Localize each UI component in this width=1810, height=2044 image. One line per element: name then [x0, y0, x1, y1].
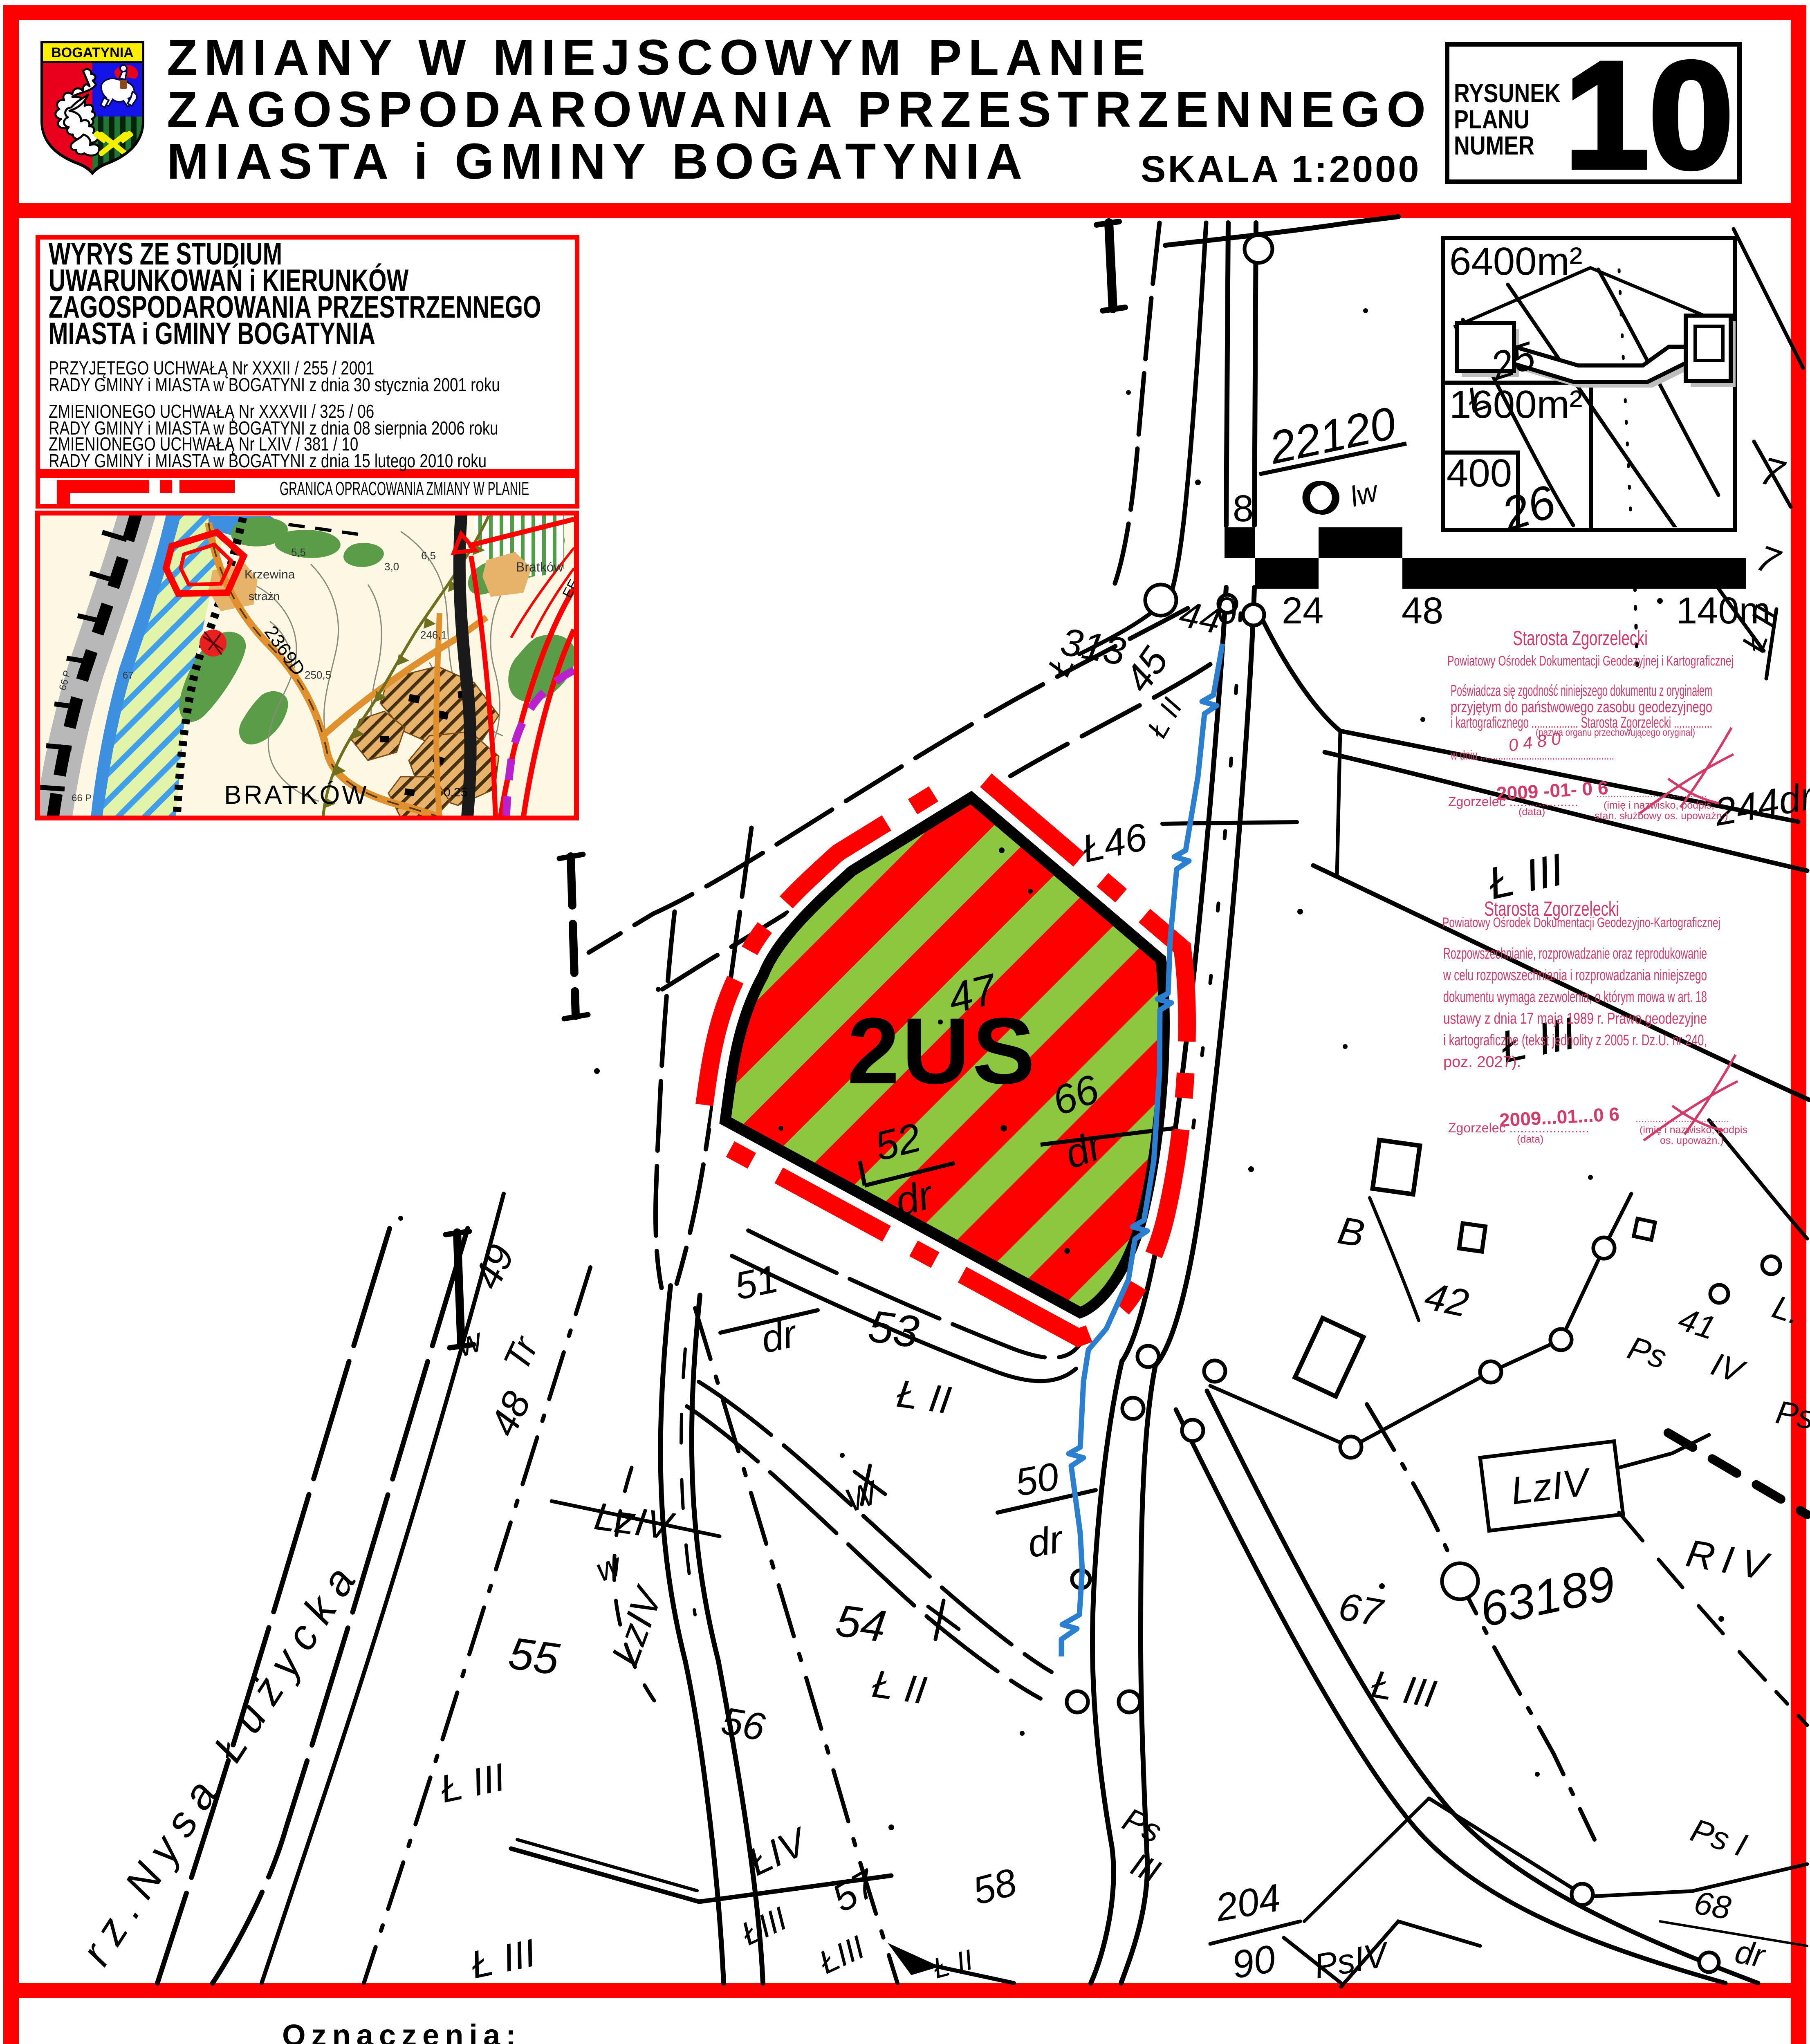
- svg-text:III: III: [1126, 1846, 1166, 1890]
- svg-text:BRATKÓW: BRATKÓW: [224, 780, 369, 809]
- svg-text:53: 53: [866, 1301, 922, 1358]
- svg-text:Ł46: Ł46: [1078, 815, 1151, 871]
- svg-text:6,5: 6,5: [421, 549, 436, 562]
- svg-text:Ł II: Ł II: [930, 1943, 976, 1985]
- svg-text:LzIV: LzIV: [592, 1495, 678, 1549]
- svg-text:24: 24: [1282, 590, 1323, 632]
- svg-text:(imię i nazwisko, podpis: (imię i nazwisko, podpis: [1640, 1124, 1747, 1136]
- svg-text:Ł III: Ł III: [467, 1931, 539, 1987]
- svg-text:Ł II: Ł II: [1141, 693, 1188, 743]
- svg-text:stan. służbowy os. upoważn.): stan. służbowy os. upoważn.): [1595, 810, 1728, 822]
- svg-text:BOGATYNIA: BOGATYNIA: [51, 45, 133, 61]
- svg-text:22120: 22120: [1265, 397, 1400, 473]
- svg-text:41: 41: [1674, 1301, 1720, 1347]
- svg-text:66 P: 66 P: [72, 793, 92, 804]
- svg-text:56: 56: [718, 1699, 768, 1749]
- svg-text:w celu rozpowszechniania i: w celu rozpowszechniania i rozprowadzani…: [1443, 967, 1707, 984]
- svg-text:67: 67: [1335, 1585, 1387, 1635]
- svg-text:(data): (data): [1517, 1134, 1543, 1145]
- svg-text:42: 42: [1421, 1274, 1472, 1326]
- svg-text:58: 58: [968, 1860, 1021, 1914]
- svg-text:ŁIII: ŁIII: [736, 1900, 792, 1952]
- svg-text:Powiatowy Ośrodek Dokumentacji: Powiatowy Ośrodek Dokumentacji Geodezyjn…: [1442, 915, 1720, 930]
- svg-text:dr: dr: [757, 1312, 801, 1362]
- svg-text:Ps: Ps: [1624, 1329, 1671, 1376]
- svg-text:PsIV: PsIV: [1311, 1935, 1393, 1986]
- svg-text:7: 7: [1751, 538, 1785, 583]
- svg-text:Krzewina: Krzewina: [244, 568, 295, 581]
- svg-text:LzIV: LzIV: [1509, 1460, 1594, 1513]
- svg-text:Ps: Ps: [1117, 1801, 1167, 1850]
- svg-text:63189: 63189: [1475, 1555, 1620, 1637]
- svg-text:poz. 2027).: poz. 2027).: [1443, 1053, 1521, 1071]
- svg-text:..............................: .................................: [1635, 1113, 1729, 1125]
- svg-text:Ps I: Ps I: [1687, 1812, 1752, 1864]
- svg-text:RIV: RIV: [1683, 1531, 1778, 1589]
- svg-text:2009...01...0 6: 2009...01...0 6: [1499, 1103, 1620, 1131]
- svg-text:5,5: 5,5: [291, 546, 306, 558]
- svg-text:Ps: Ps: [1773, 1394, 1810, 1436]
- svg-text:68: 68: [1691, 1884, 1734, 1926]
- svg-text:54: 54: [833, 1595, 889, 1652]
- svg-text:(imię i nazwisko, podpis,: (imię i nazwisko, podpis,: [1604, 800, 1714, 811]
- svg-text:400: 400: [1447, 451, 1512, 495]
- svg-text:i kartograficzne (tekst jednol: i kartograficzne (tekst jednolity z 2005…: [1443, 1032, 1707, 1049]
- svg-text:90: 90: [1229, 1937, 1279, 1987]
- svg-text:w: w: [591, 1546, 628, 1589]
- svg-text:ustawy z dnia 17 maja 198: ustawy z dnia 17 maja 1989 r. Prawo geod…: [1443, 1010, 1707, 1027]
- svg-text:Tr: Tr: [496, 1330, 547, 1377]
- svg-text:2US: 2US: [847, 998, 1037, 1103]
- svg-text:IV: IV: [1707, 1346, 1750, 1391]
- svg-text:50: 50: [1012, 1455, 1062, 1505]
- svg-text:W: W: [840, 1473, 884, 1519]
- svg-text:55: 55: [506, 1628, 563, 1685]
- svg-text:0,25: 0,25: [444, 786, 467, 799]
- svg-text:dr: dr: [1732, 1933, 1769, 1975]
- svg-text:strażn: strażn: [249, 590, 280, 603]
- svg-text:250,5: 250,5: [305, 669, 331, 681]
- svg-text:lw: lw: [1347, 475, 1383, 513]
- svg-text:2009 -01- 0 6: 2009 -01- 0 6: [1496, 777, 1609, 804]
- svg-text:ŁIII: ŁIII: [814, 1929, 870, 1981]
- svg-text:Rozpowszechnianie, rozprowadz: Rozpowszechnianie, rozprowadzanie oraz r…: [1443, 945, 1707, 962]
- svg-text:B: B: [1335, 1208, 1368, 1255]
- svg-text:49: 49: [465, 1238, 523, 1295]
- svg-text:przyjętym do państwowego za: przyjętym do państwowego zasobu geodezyj…: [1451, 699, 1712, 716]
- svg-text:Powiatowy Ośrodek Dokumentacji: Powiatowy Ośrodek Dokumentacji Geodezyjn…: [1447, 653, 1734, 669]
- svg-text:(data): (data): [1518, 806, 1545, 818]
- svg-text:51: 51: [731, 1257, 782, 1309]
- svg-text:Ł III: Ł III: [436, 1755, 509, 1811]
- svg-text:204: 204: [1212, 1876, 1283, 1930]
- svg-text:Poświadcza się zgodność niniej: Poświadcza się zgodność niniejszego doku…: [1451, 682, 1712, 699]
- svg-text:dr: dr: [1024, 1517, 1067, 1566]
- svg-text:44: 44: [1176, 594, 1225, 642]
- svg-text:67: 67: [123, 670, 134, 681]
- svg-text:48: 48: [482, 1385, 539, 1443]
- svg-text:246,1: 246,1: [420, 629, 447, 641]
- svg-text:os. upoważn.): os. upoważn.): [1660, 1135, 1724, 1146]
- svg-text:rz.Nysa Łużycka: rz.Nysa Łużycka: [72, 1550, 370, 1974]
- svg-text:LzIV: LzIV: [603, 1580, 671, 1671]
- svg-text:48: 48: [1402, 590, 1443, 632]
- svg-text:6400m²: 6400m²: [1449, 240, 1583, 283]
- svg-text:Ł II: Ł II: [894, 1372, 953, 1422]
- svg-text:Starosta Zgorzelecki: Starosta Zgorzelecki: [1513, 627, 1648, 650]
- svg-text:dokumentu wymaga zezwolenia, o: dokumentu wymaga zezwolenia, o którym mo…: [1443, 988, 1707, 1006]
- svg-text:Ł II: Ł II: [870, 1662, 929, 1712]
- svg-text:244dr: 244dr: [1711, 774, 1810, 834]
- svg-text:3,0: 3,0: [384, 560, 399, 573]
- svg-text:L.: L.: [1768, 1289, 1806, 1331]
- svg-text:Bratków: Bratków: [516, 560, 563, 574]
- svg-text:8: 8: [1233, 488, 1254, 529]
